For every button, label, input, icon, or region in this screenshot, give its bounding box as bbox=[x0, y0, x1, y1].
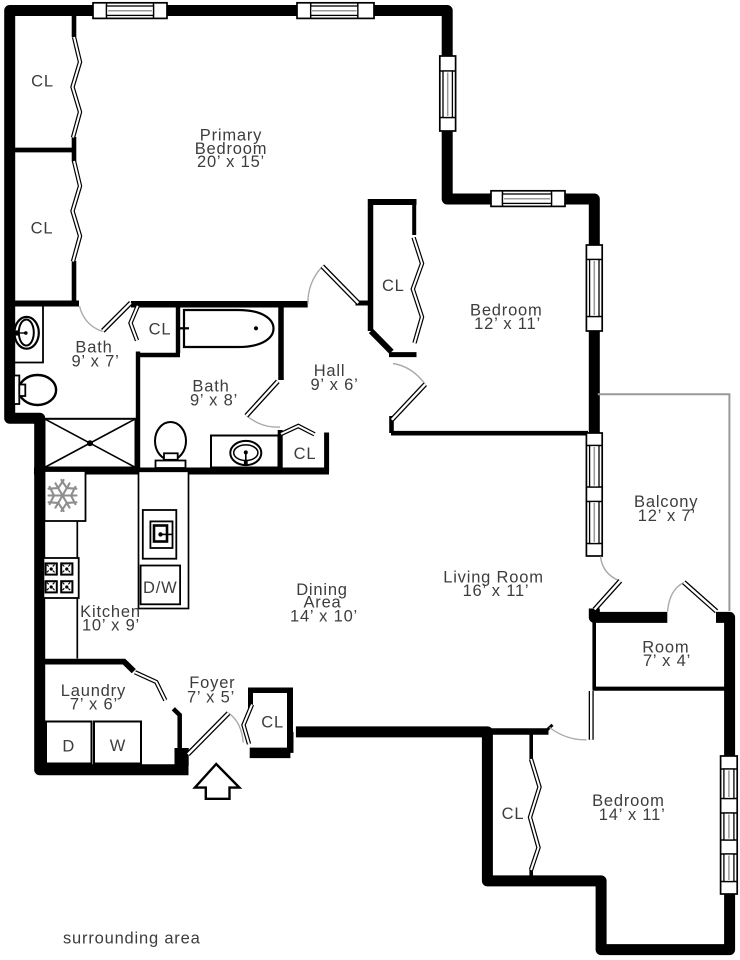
svg-text:9’ x 7’: 9’ x 7’ bbox=[71, 353, 119, 371]
svg-text:CL: CL bbox=[149, 321, 172, 339]
svg-text:CL: CL bbox=[261, 714, 284, 732]
svg-text:CL: CL bbox=[502, 805, 525, 823]
svg-text:D/W: D/W bbox=[143, 579, 177, 597]
svg-text:7’ x 6’: 7’ x 6’ bbox=[70, 696, 118, 714]
svg-text:14’ x 11’: 14’ x 11’ bbox=[599, 806, 666, 824]
svg-text:12’ x 11’: 12’ x 11’ bbox=[474, 315, 541, 333]
svg-text:W: W bbox=[110, 737, 126, 755]
svg-text:surrounding area: surrounding area bbox=[63, 930, 201, 948]
svg-text:CL: CL bbox=[31, 220, 54, 238]
svg-text:CL: CL bbox=[294, 445, 317, 463]
svg-text:7’ x 5’: 7’ x 5’ bbox=[187, 689, 235, 707]
svg-text:20’ x 15’: 20’ x 15’ bbox=[197, 153, 265, 171]
svg-text:CL: CL bbox=[382, 277, 405, 295]
svg-text:10’ x 9’: 10’ x 9’ bbox=[82, 617, 140, 635]
svg-text:D: D bbox=[62, 738, 75, 756]
svg-text:9’ x 8’: 9’ x 8’ bbox=[190, 392, 238, 410]
svg-text:14’ x 10’: 14’ x 10’ bbox=[290, 607, 358, 625]
svg-text:16’ x 11’: 16’ x 11’ bbox=[463, 582, 530, 600]
svg-text:12’ x 7’: 12’ x 7’ bbox=[638, 507, 696, 525]
svg-text:9’ x 6’: 9’ x 6’ bbox=[310, 376, 358, 394]
svg-text:CL: CL bbox=[31, 73, 54, 91]
svg-text:7’ x 4’: 7’ x 4’ bbox=[643, 652, 691, 670]
